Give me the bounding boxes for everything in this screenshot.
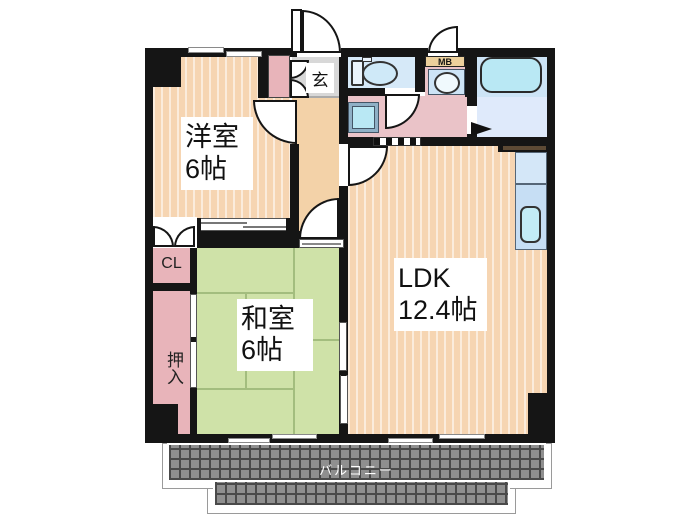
wall xyxy=(339,98,348,144)
wall xyxy=(153,283,190,291)
room-label-ldk: LDK 12.4帖 xyxy=(394,258,487,331)
wall xyxy=(343,88,385,96)
window xyxy=(439,434,485,439)
sliding-door-cap xyxy=(191,337,196,342)
room-name: LDK xyxy=(398,263,483,294)
bathtub-icon xyxy=(480,57,542,93)
wall xyxy=(145,48,181,87)
wall xyxy=(528,393,555,443)
sliding-door-line xyxy=(201,222,247,224)
genkan-label: 玄 xyxy=(306,63,334,93)
door-threshold-line xyxy=(302,243,341,245)
washing-machine-pan-icon xyxy=(352,106,375,129)
bath-door-icon xyxy=(471,122,492,136)
wall xyxy=(467,97,477,106)
sliding-door-line xyxy=(243,226,288,228)
room-name: 和室 xyxy=(241,304,309,335)
toilet-icon xyxy=(362,61,398,86)
entry-door-leaf xyxy=(291,9,302,53)
wall xyxy=(470,137,555,146)
window xyxy=(272,434,317,439)
wall xyxy=(153,434,553,443)
sliding-door xyxy=(197,218,290,231)
closet-oshiire xyxy=(178,404,190,435)
window xyxy=(226,51,262,57)
toilet-icon xyxy=(362,57,372,62)
lintel-bar xyxy=(503,146,546,150)
meter-box: MB xyxy=(425,56,465,67)
shoe-cabinet xyxy=(268,55,290,98)
sliding-door xyxy=(340,375,348,424)
washbasin-icon xyxy=(434,72,460,94)
window xyxy=(228,438,270,443)
kitchen-counter xyxy=(515,152,547,184)
swing-door-arc xyxy=(302,10,341,53)
sliding-door-cap xyxy=(341,371,346,376)
wall xyxy=(421,137,470,146)
washroom-folding-door xyxy=(373,137,421,146)
window xyxy=(388,438,433,443)
room-size: 6帖 xyxy=(185,154,249,185)
room-name: 洋室 xyxy=(185,122,249,153)
wall xyxy=(465,48,477,97)
oshiire-label: 押入 xyxy=(158,330,186,406)
room-size: 12.4帖 xyxy=(398,295,483,326)
sliding-door-cap xyxy=(286,218,290,231)
room-size: 6帖 xyxy=(241,335,309,366)
wall xyxy=(145,48,153,443)
balcony-label: バルコニー xyxy=(167,460,546,479)
swing-door-arc xyxy=(428,26,458,53)
room-label-japanese: 和室 6帖 xyxy=(237,299,313,371)
wall xyxy=(290,144,299,240)
wall xyxy=(348,137,373,146)
room-label-western: 洋室 6帖 xyxy=(181,117,253,190)
floor-plan: バルコニー xyxy=(0,0,700,525)
tatami-line xyxy=(197,388,294,390)
window xyxy=(188,47,224,53)
cl-label: CL xyxy=(153,255,190,273)
wall xyxy=(547,48,555,443)
kitchen-sink-icon xyxy=(520,206,541,243)
wall xyxy=(415,48,425,92)
sliding-door-cap xyxy=(197,218,201,231)
sliding-door xyxy=(339,322,347,371)
